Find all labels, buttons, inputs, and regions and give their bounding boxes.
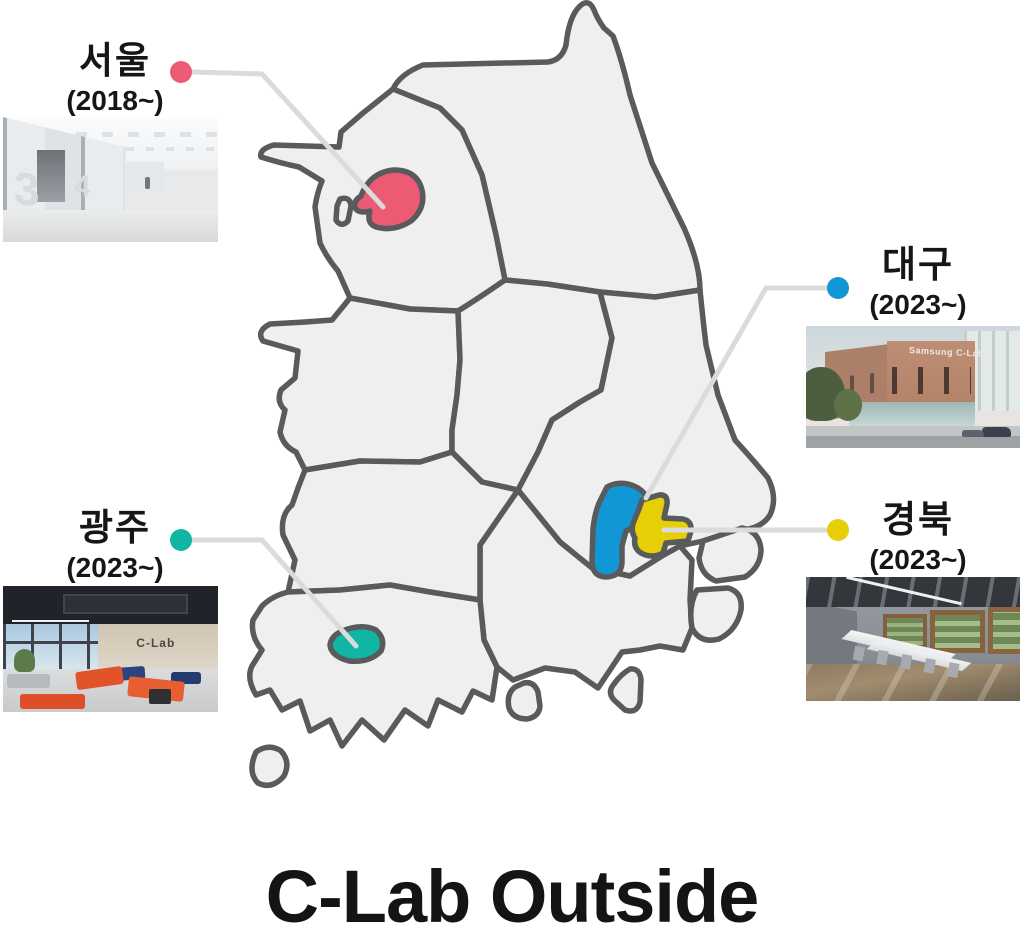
label-gyeongbuk-since: (2023~) [818,545,1018,574]
photo-light-strip [12,620,89,622]
photo-glass-number: 4 [74,169,91,205]
seoul-photo: 3 4 [3,117,218,242]
map-island-south-center [508,683,540,719]
photo-plant [14,649,36,672]
label-gwangju-name: 광주 [15,509,215,548]
photo-wall-sign: C-Lab [136,636,175,650]
map-region-chungnam [261,298,460,470]
photo-side-table [149,689,171,704]
label-seoul-since: (2018~) [15,86,215,115]
label-daegu-name: 대구 [818,246,1018,285]
label-seoul-name: 서울 [15,42,215,81]
photo-floor [3,210,218,243]
photo-person [145,177,150,189]
map-region-incheon [336,198,351,224]
photo-ceiling-cove [63,594,187,614]
gyeongbuk-photo [806,577,1020,701]
map-island-southeast [611,669,642,711]
photo-window [988,607,1020,654]
photo-building-glass-floor [849,402,975,426]
photo-car [962,430,983,437]
photo-tree [834,389,862,421]
photo-car [982,427,1012,437]
gwangju-photo: C-Lab [3,586,218,712]
photo-window [930,610,985,652]
label-gyeongbuk-name: 경북 [818,501,1018,540]
map-region-busan [691,588,741,640]
label-daegu: 대구 (2023~) [818,246,1018,319]
photo-door [37,150,65,203]
label-gyeongbuk: 경북 (2023~) [818,501,1018,574]
photo-road [806,436,1020,448]
photo-building-windows [892,367,971,394]
photo-sofa-gray [7,674,50,688]
label-seoul: 서울 (2018~) [15,42,215,115]
map-island-southwest [252,747,287,785]
page-title: C-Lab Outside [0,854,1024,939]
label-daegu-since: (2023~) [818,290,1018,319]
photo-ceiling-lights [76,132,218,137]
photo-window-rail [3,641,98,644]
label-gwangju-since: (2023~) [15,553,215,582]
map-provinces [250,3,774,786]
label-gwangju: 광주 (2023~) [15,509,215,582]
map-region-jeonnam [250,585,497,746]
infographic-canvas: 서울 (2018~) 대구 (2023~) 경북 (2023~) 광주 (202… [0,0,1024,948]
photo-sofa-orange [20,694,85,709]
daegu-photo: Samsung C-Lab [806,326,1020,448]
